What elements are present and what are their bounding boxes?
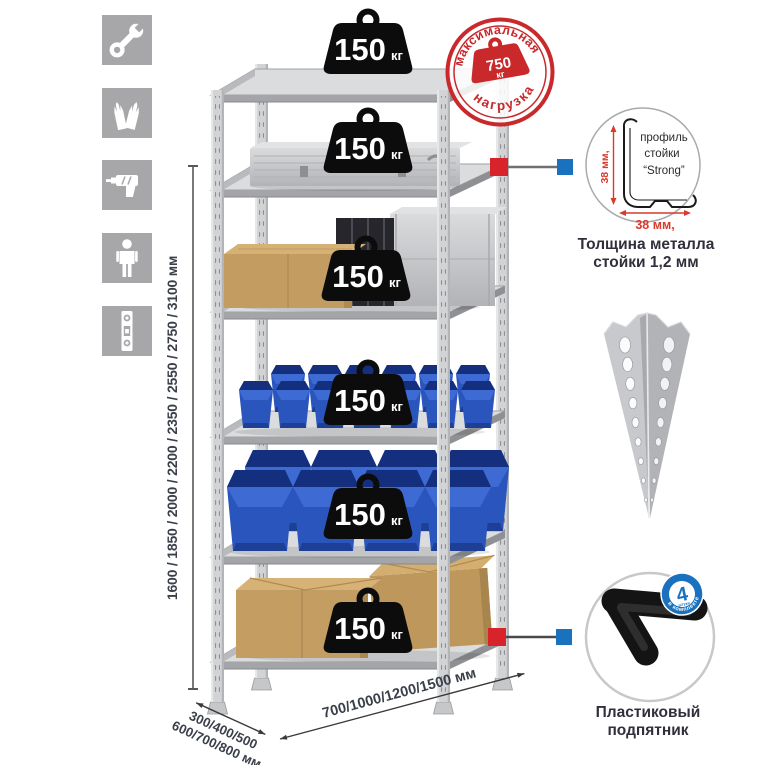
profile-caption-line2: стойки 1,2 мм	[593, 254, 698, 271]
callout-profile	[490, 158, 573, 176]
load-unit: кг	[389, 275, 402, 290]
profile-label-3: “Strong”	[643, 165, 685, 177]
infographic-canvas: 1600 / 1850 / 2000 / 2200 / 2350 / 2550 …	[0, 0, 765, 765]
profile-detail-circle: 38 мм, 38 мм, профиль стойки “Strong”	[586, 108, 700, 232]
load-unit: кг	[391, 513, 404, 528]
rack-back-post-right	[493, 64, 513, 690]
callout-blue-marker	[556, 629, 572, 645]
level-icon	[102, 306, 152, 356]
callout-foot	[488, 628, 572, 646]
max-load-stamp: максимальная нагрузка 750 кг	[439, 11, 561, 133]
assembly-icons	[102, 15, 152, 356]
drill-icon	[102, 160, 152, 210]
callout-red-marker	[490, 158, 508, 176]
load-unit: кг	[391, 627, 404, 642]
load-unit: кг	[391, 399, 404, 414]
load-value: 150	[334, 32, 386, 67]
width-dimension-label: 700/1000/1200/1500 мм	[321, 665, 478, 721]
profile-caption: Толщина металла стойки 1,2 мм	[578, 236, 715, 271]
callout-red-marker	[488, 628, 506, 646]
profile-caption-line1: Толщина металла	[578, 236, 715, 253]
load-unit: кг	[391, 48, 404, 63]
load-value: 150	[334, 383, 386, 418]
gloves-icon	[102, 88, 152, 138]
callout-blue-marker	[557, 159, 573, 175]
load-value: 150	[332, 259, 384, 294]
load-unit: кг	[391, 147, 404, 162]
load-badge-2: 150 кг	[324, 111, 413, 174]
profile-label-2: стойки	[644, 148, 679, 160]
height-dimension: 1600 / 1850 / 2000 / 2200 / 2350 / 2550 …	[164, 166, 198, 689]
profile-dim-horizontal: 38 мм,	[635, 218, 674, 232]
foot-detail-circle: 4 штуки в комплекте	[586, 569, 714, 701]
foot-caption-line2: подпятник	[607, 722, 688, 739]
foot-caption-line1: Пластиковый	[596, 704, 701, 721]
load-value: 150	[334, 611, 386, 646]
load-value: 150	[334, 131, 386, 166]
wrench-icon	[102, 15, 152, 65]
profile-label-1: профиль	[640, 132, 688, 144]
foot-caption: Пластиковый подпятник	[596, 704, 701, 739]
profile-dim-vertical: 38 мм,	[599, 150, 611, 183]
person-icon	[102, 233, 152, 283]
load-badge-1: 150 кг	[324, 12, 413, 75]
load-value: 150	[334, 497, 386, 532]
upright-profile-image	[604, 313, 690, 518]
product-infographic: 1600 / 1850 / 2000 / 2200 / 2350 / 2550 …	[0, 0, 765, 765]
height-dimension-label: 1600 / 1850 / 2000 / 2200 / 2350 / 2550 …	[164, 256, 180, 600]
